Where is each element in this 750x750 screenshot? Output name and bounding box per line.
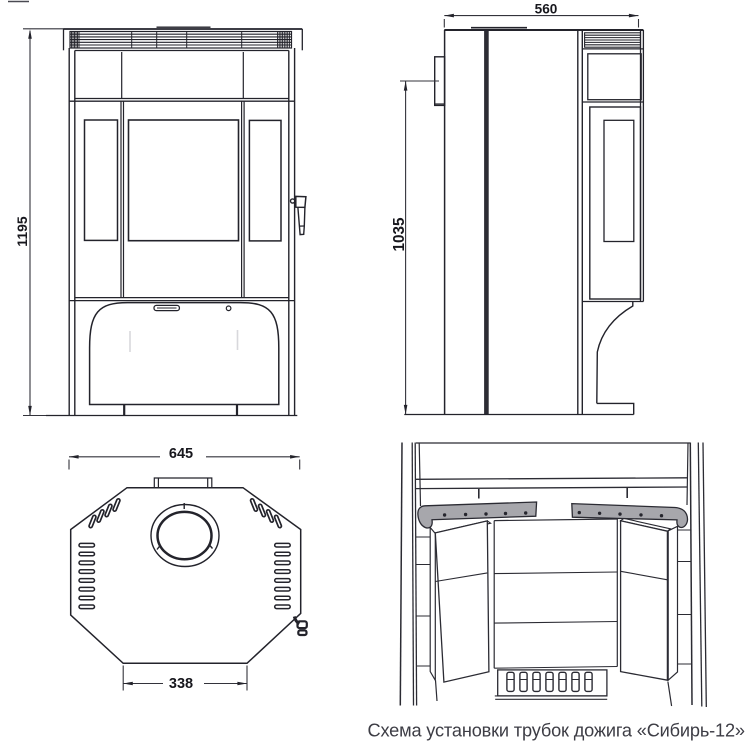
svg-text:338: 338 bbox=[169, 676, 193, 692]
svg-text:560: 560 bbox=[535, 1, 558, 16]
svg-text:645: 645 bbox=[169, 446, 193, 462]
svg-text:Схема установки трубок дожига: Схема установки трубок дожига «Сибирь-12… bbox=[368, 721, 745, 741]
svg-text:1035: 1035 bbox=[391, 217, 408, 252]
svg-text:1195: 1195 bbox=[14, 216, 30, 247]
